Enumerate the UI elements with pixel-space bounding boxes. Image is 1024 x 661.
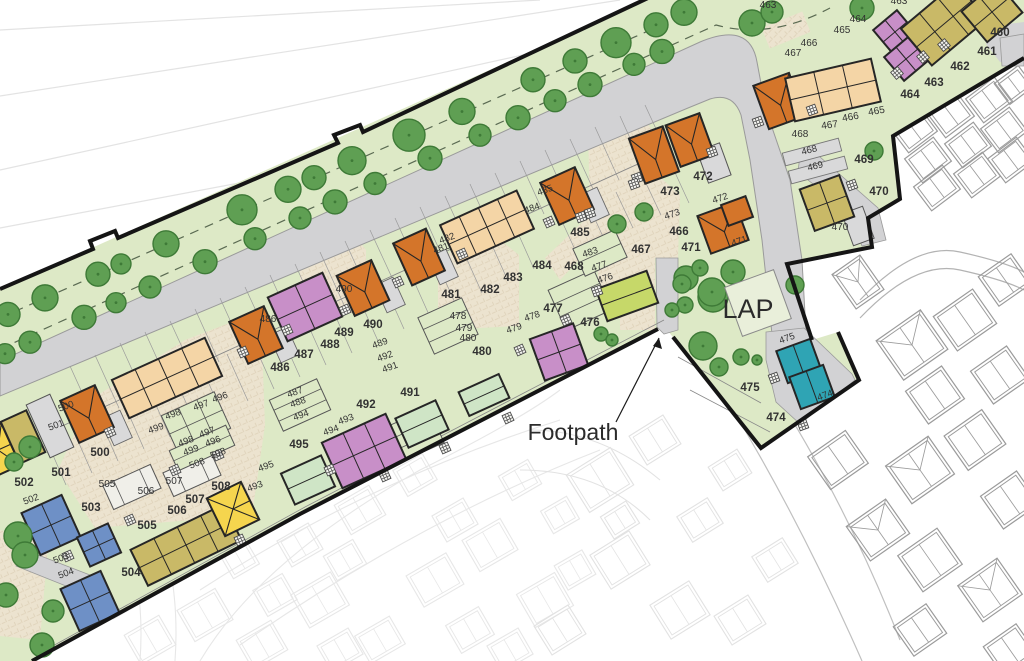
svg-text:472: 472	[693, 171, 712, 183]
svg-text:505: 505	[99, 479, 116, 490]
svg-text:466: 466	[801, 38, 818, 49]
svg-text:478: 478	[450, 311, 467, 322]
svg-text:477: 477	[543, 303, 562, 315]
svg-text:487: 487	[294, 349, 313, 361]
svg-text:470: 470	[832, 222, 849, 233]
svg-text:490: 490	[363, 319, 382, 331]
svg-text:LAP: LAP	[722, 294, 773, 324]
svg-text:468: 468	[564, 261, 584, 273]
svg-text:463: 463	[891, 0, 908, 7]
svg-text:503: 503	[81, 502, 100, 514]
svg-text:464: 464	[850, 14, 867, 25]
svg-text:463: 463	[924, 77, 943, 89]
svg-text:507: 507	[166, 476, 183, 487]
svg-text:506: 506	[138, 486, 155, 497]
svg-text:469: 469	[854, 154, 873, 166]
svg-text:491: 491	[400, 387, 420, 399]
svg-text:492: 492	[356, 399, 375, 411]
svg-text:485: 485	[570, 227, 590, 239]
svg-text:483: 483	[503, 272, 522, 284]
svg-text:467: 467	[785, 48, 802, 59]
svg-text:486: 486	[260, 314, 277, 325]
svg-text:476: 476	[580, 317, 599, 329]
svg-text:484: 484	[532, 260, 552, 272]
svg-text:486: 486	[270, 362, 289, 374]
svg-text:502: 502	[14, 477, 33, 489]
svg-text:490: 490	[336, 284, 353, 295]
svg-text:461: 461	[977, 46, 997, 58]
svg-text:495: 495	[289, 439, 309, 451]
svg-text:475: 475	[740, 382, 760, 394]
svg-text:480: 480	[472, 346, 491, 358]
svg-text:504: 504	[121, 567, 141, 579]
svg-text:506: 506	[167, 505, 186, 517]
svg-text:467: 467	[631, 244, 650, 256]
svg-text:460: 460	[990, 27, 1009, 39]
svg-text:462: 462	[950, 61, 969, 73]
svg-text:488: 488	[320, 339, 340, 351]
svg-text:489: 489	[334, 327, 353, 339]
svg-text:501: 501	[51, 467, 71, 479]
svg-text:473: 473	[660, 186, 679, 198]
svg-text:468: 468	[792, 129, 809, 140]
svg-text:Footpath: Footpath	[528, 419, 619, 445]
svg-text:505: 505	[137, 520, 157, 532]
svg-text:482: 482	[480, 284, 499, 296]
svg-text:463: 463	[760, 0, 777, 11]
svg-text:470: 470	[869, 186, 888, 198]
svg-text:500: 500	[90, 447, 109, 459]
svg-text:466: 466	[669, 226, 688, 238]
svg-text:480: 480	[460, 333, 477, 344]
svg-text:471: 471	[681, 242, 701, 254]
svg-text:464: 464	[900, 89, 920, 101]
svg-text:508: 508	[211, 481, 231, 493]
svg-text:465: 465	[834, 25, 851, 36]
svg-text:481: 481	[441, 289, 461, 301]
svg-text:474: 474	[766, 412, 786, 424]
svg-text:507: 507	[185, 494, 204, 506]
